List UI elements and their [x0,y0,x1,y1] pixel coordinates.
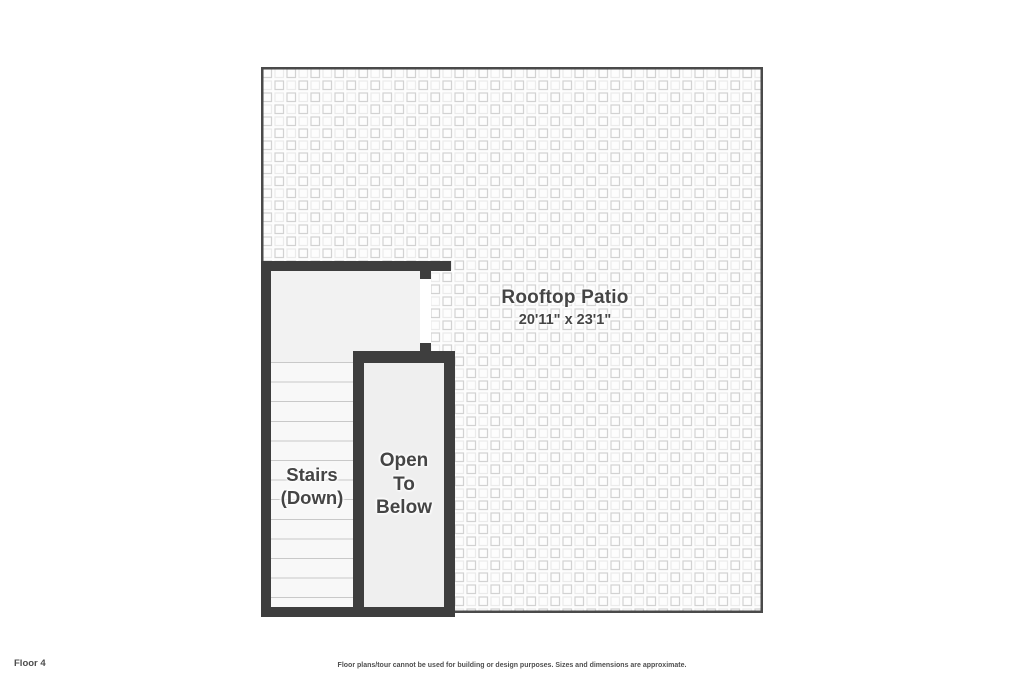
rooftop-patio-name: Rooftop Patio [430,287,700,309]
open-to-below-line2: To [356,473,452,497]
rooftop-patio-label: Rooftop Patio 20'11" x 23'1" [430,287,700,329]
stairwell-top-wall [261,261,451,271]
rooftop-patio-dimensions: 20'11" x 23'1" [430,312,700,329]
stairs-label: Stairs (Down) [254,463,370,509]
stairs-label-line2: (Down) [254,486,370,509]
stairs-label-line1: Stairs [254,463,370,486]
door-jamb-bottom [420,343,431,351]
stairwell-bottom-wall [261,607,455,617]
open-to-below-line3: Below [356,496,452,520]
open-to-below-line1: Open [356,449,452,473]
open-to-below-label: Open To Below [356,449,452,520]
stairwell-left-wall [261,261,271,617]
floor-plan: Rooftop Patio 20'11" x 23'1" Stairs (Dow… [0,0,1024,683]
stair-landing-room [271,271,421,362]
disclaimer-text: Floor plans/tour cannot be used for buil… [0,662,1024,669]
door-jamb-top [420,271,431,279]
